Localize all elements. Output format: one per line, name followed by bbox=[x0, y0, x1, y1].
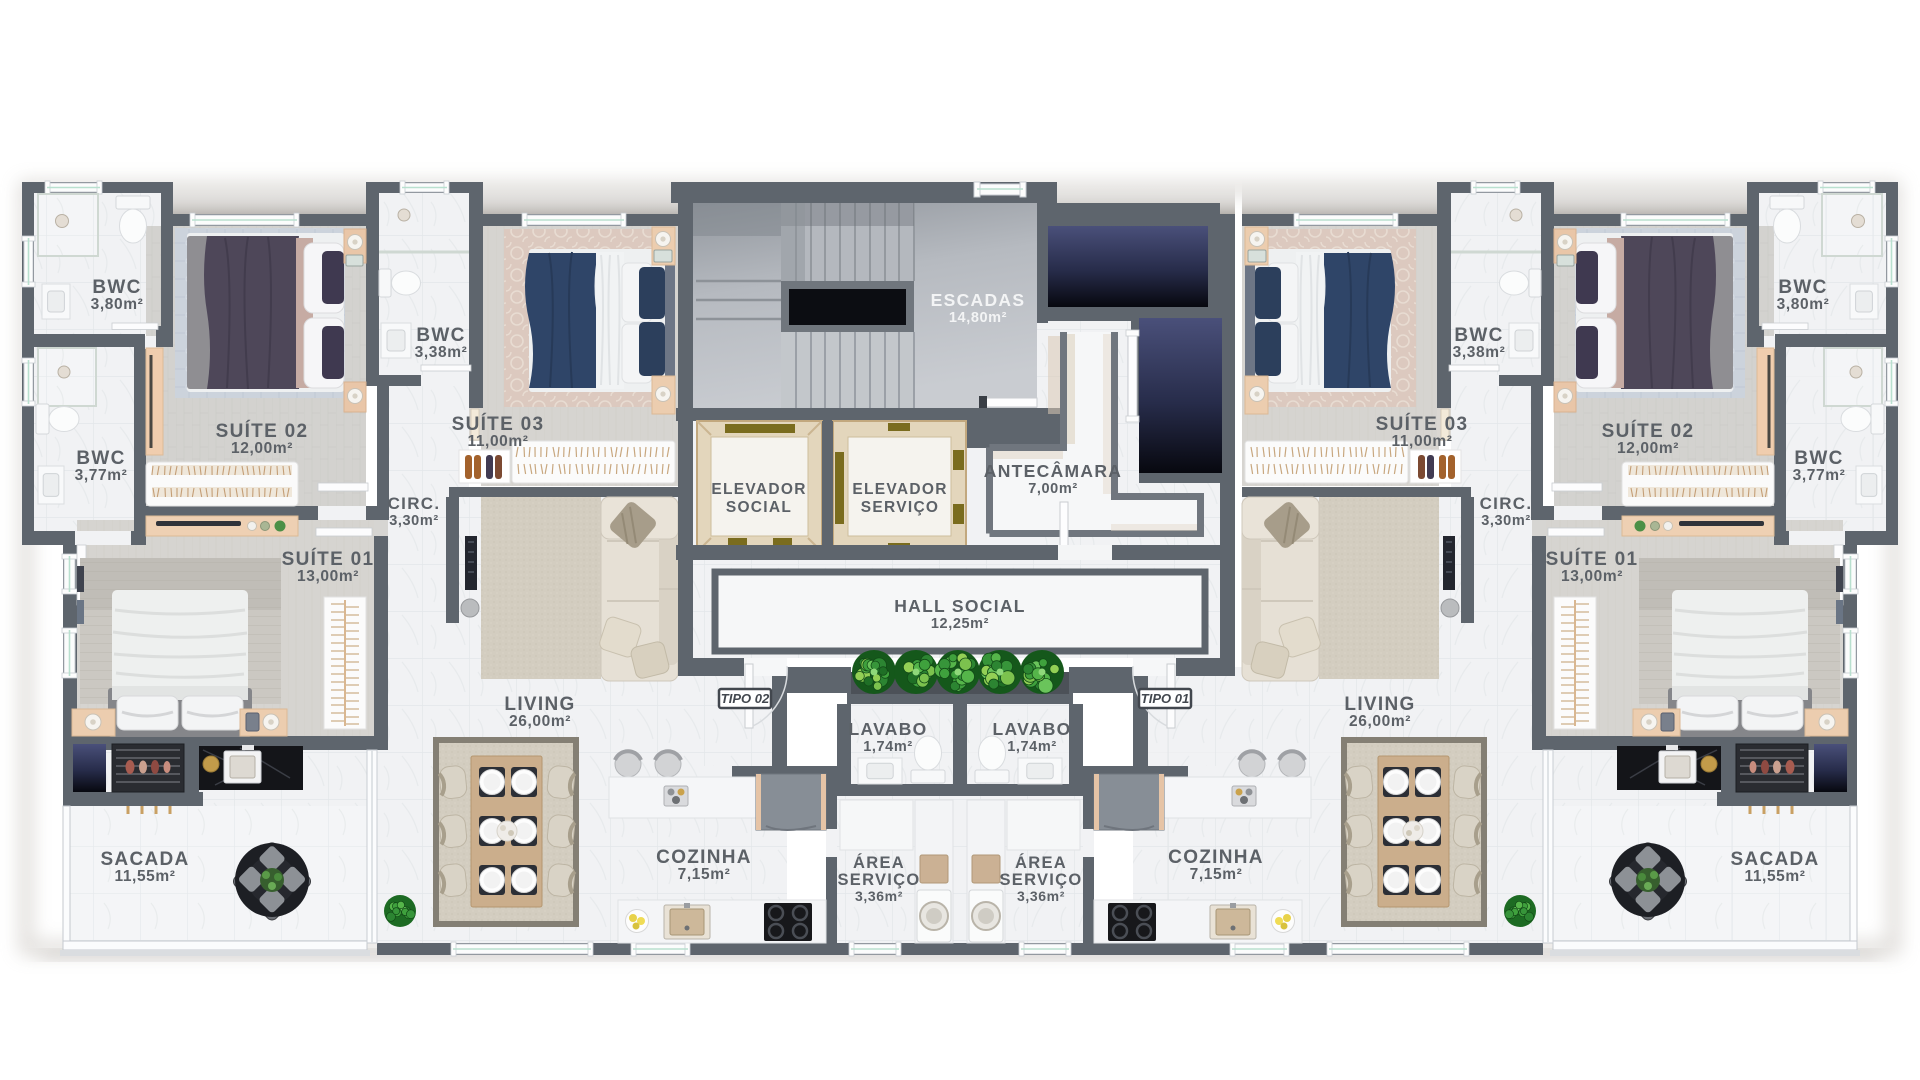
svg-text:1,74m²: 1,74m² bbox=[1007, 739, 1057, 755]
svg-text:ÁREA: ÁREA bbox=[853, 853, 905, 872]
svg-text:CIRC.: CIRC. bbox=[1480, 494, 1533, 513]
svg-text:11,55m²: 11,55m² bbox=[1744, 868, 1805, 885]
svg-text:1,74m²: 1,74m² bbox=[863, 739, 913, 755]
svg-text:BWC: BWC bbox=[76, 448, 125, 469]
svg-text:BWC: BWC bbox=[1454, 325, 1503, 346]
svg-text:SUÍTE 02: SUÍTE 02 bbox=[1602, 420, 1695, 442]
svg-text:ESCADAS: ESCADAS bbox=[931, 290, 1026, 310]
svg-text:SERVIÇO: SERVIÇO bbox=[999, 871, 1082, 889]
svg-text:BWC: BWC bbox=[92, 277, 141, 298]
svg-text:BWC: BWC bbox=[416, 325, 465, 346]
svg-text:3,80m²: 3,80m² bbox=[91, 296, 144, 313]
svg-text:SUÍTE 02: SUÍTE 02 bbox=[216, 420, 309, 442]
svg-text:LIVING: LIVING bbox=[504, 694, 575, 715]
svg-text:3,30m²: 3,30m² bbox=[1481, 513, 1531, 529]
svg-text:SERVIÇO: SERVIÇO bbox=[861, 499, 940, 516]
svg-text:3,36m²: 3,36m² bbox=[1017, 888, 1065, 904]
svg-text:BWC: BWC bbox=[1794, 448, 1843, 469]
svg-text:SUÍTE 03: SUÍTE 03 bbox=[452, 413, 545, 435]
svg-text:12,25m²: 12,25m² bbox=[931, 616, 989, 632]
svg-text:11,00m²: 11,00m² bbox=[467, 433, 528, 450]
svg-text:ELEVADOR: ELEVADOR bbox=[711, 481, 806, 498]
svg-text:SERVIÇO: SERVIÇO bbox=[837, 871, 920, 889]
svg-text:SACADA: SACADA bbox=[100, 849, 189, 870]
svg-text:SOCIAL: SOCIAL bbox=[726, 499, 792, 516]
svg-text:3,30m²: 3,30m² bbox=[389, 513, 439, 529]
svg-text:3,38m²: 3,38m² bbox=[1453, 344, 1506, 361]
svg-text:HALL SOCIAL: HALL SOCIAL bbox=[894, 596, 1026, 616]
svg-text:ELEVADOR: ELEVADOR bbox=[852, 481, 947, 498]
svg-text:SUÍTE 01: SUÍTE 01 bbox=[282, 548, 375, 570]
svg-text:TIPO 02: TIPO 02 bbox=[721, 691, 770, 706]
svg-text:LAVABO: LAVABO bbox=[992, 719, 1071, 739]
svg-text:14,80m²: 14,80m² bbox=[949, 310, 1007, 326]
svg-text:11,00m²: 11,00m² bbox=[1391, 433, 1452, 450]
svg-text:3,36m²: 3,36m² bbox=[855, 888, 903, 904]
svg-text:COZINHA: COZINHA bbox=[656, 847, 752, 868]
svg-text:TIPO 01: TIPO 01 bbox=[1141, 691, 1189, 706]
svg-text:ÁREA: ÁREA bbox=[1015, 853, 1067, 872]
svg-text:CIRC.: CIRC. bbox=[388, 494, 441, 513]
svg-text:3,80m²: 3,80m² bbox=[1777, 296, 1830, 313]
svg-text:COZINHA: COZINHA bbox=[1168, 847, 1264, 868]
svg-text:12,00m²: 12,00m² bbox=[231, 440, 293, 457]
svg-text:3,38m²: 3,38m² bbox=[415, 344, 468, 361]
svg-text:3,77m²: 3,77m² bbox=[75, 467, 128, 484]
svg-text:26,00m²: 26,00m² bbox=[1349, 713, 1411, 730]
svg-text:13,00m²: 13,00m² bbox=[1561, 568, 1623, 585]
svg-text:13,00m²: 13,00m² bbox=[297, 568, 359, 585]
svg-text:3,77m²: 3,77m² bbox=[1793, 467, 1846, 484]
svg-text:SACADA: SACADA bbox=[1730, 849, 1819, 870]
svg-text:7,15m²: 7,15m² bbox=[1190, 866, 1243, 883]
svg-text:LIVING: LIVING bbox=[1344, 694, 1415, 715]
svg-text:LAVABO: LAVABO bbox=[848, 719, 927, 739]
svg-text:SUÍTE 03: SUÍTE 03 bbox=[1376, 413, 1469, 435]
svg-text:11,55m²: 11,55m² bbox=[114, 868, 175, 885]
svg-text:BWC: BWC bbox=[1778, 277, 1827, 298]
svg-text:SUÍTE 01: SUÍTE 01 bbox=[1546, 548, 1639, 570]
svg-text:26,00m²: 26,00m² bbox=[509, 713, 571, 730]
svg-text:7,15m²: 7,15m² bbox=[678, 866, 731, 883]
svg-text:7,00m²: 7,00m² bbox=[1028, 481, 1078, 497]
svg-text:ANTECÂMARA: ANTECÂMARA bbox=[984, 460, 1122, 481]
svg-text:12,00m²: 12,00m² bbox=[1617, 440, 1679, 457]
